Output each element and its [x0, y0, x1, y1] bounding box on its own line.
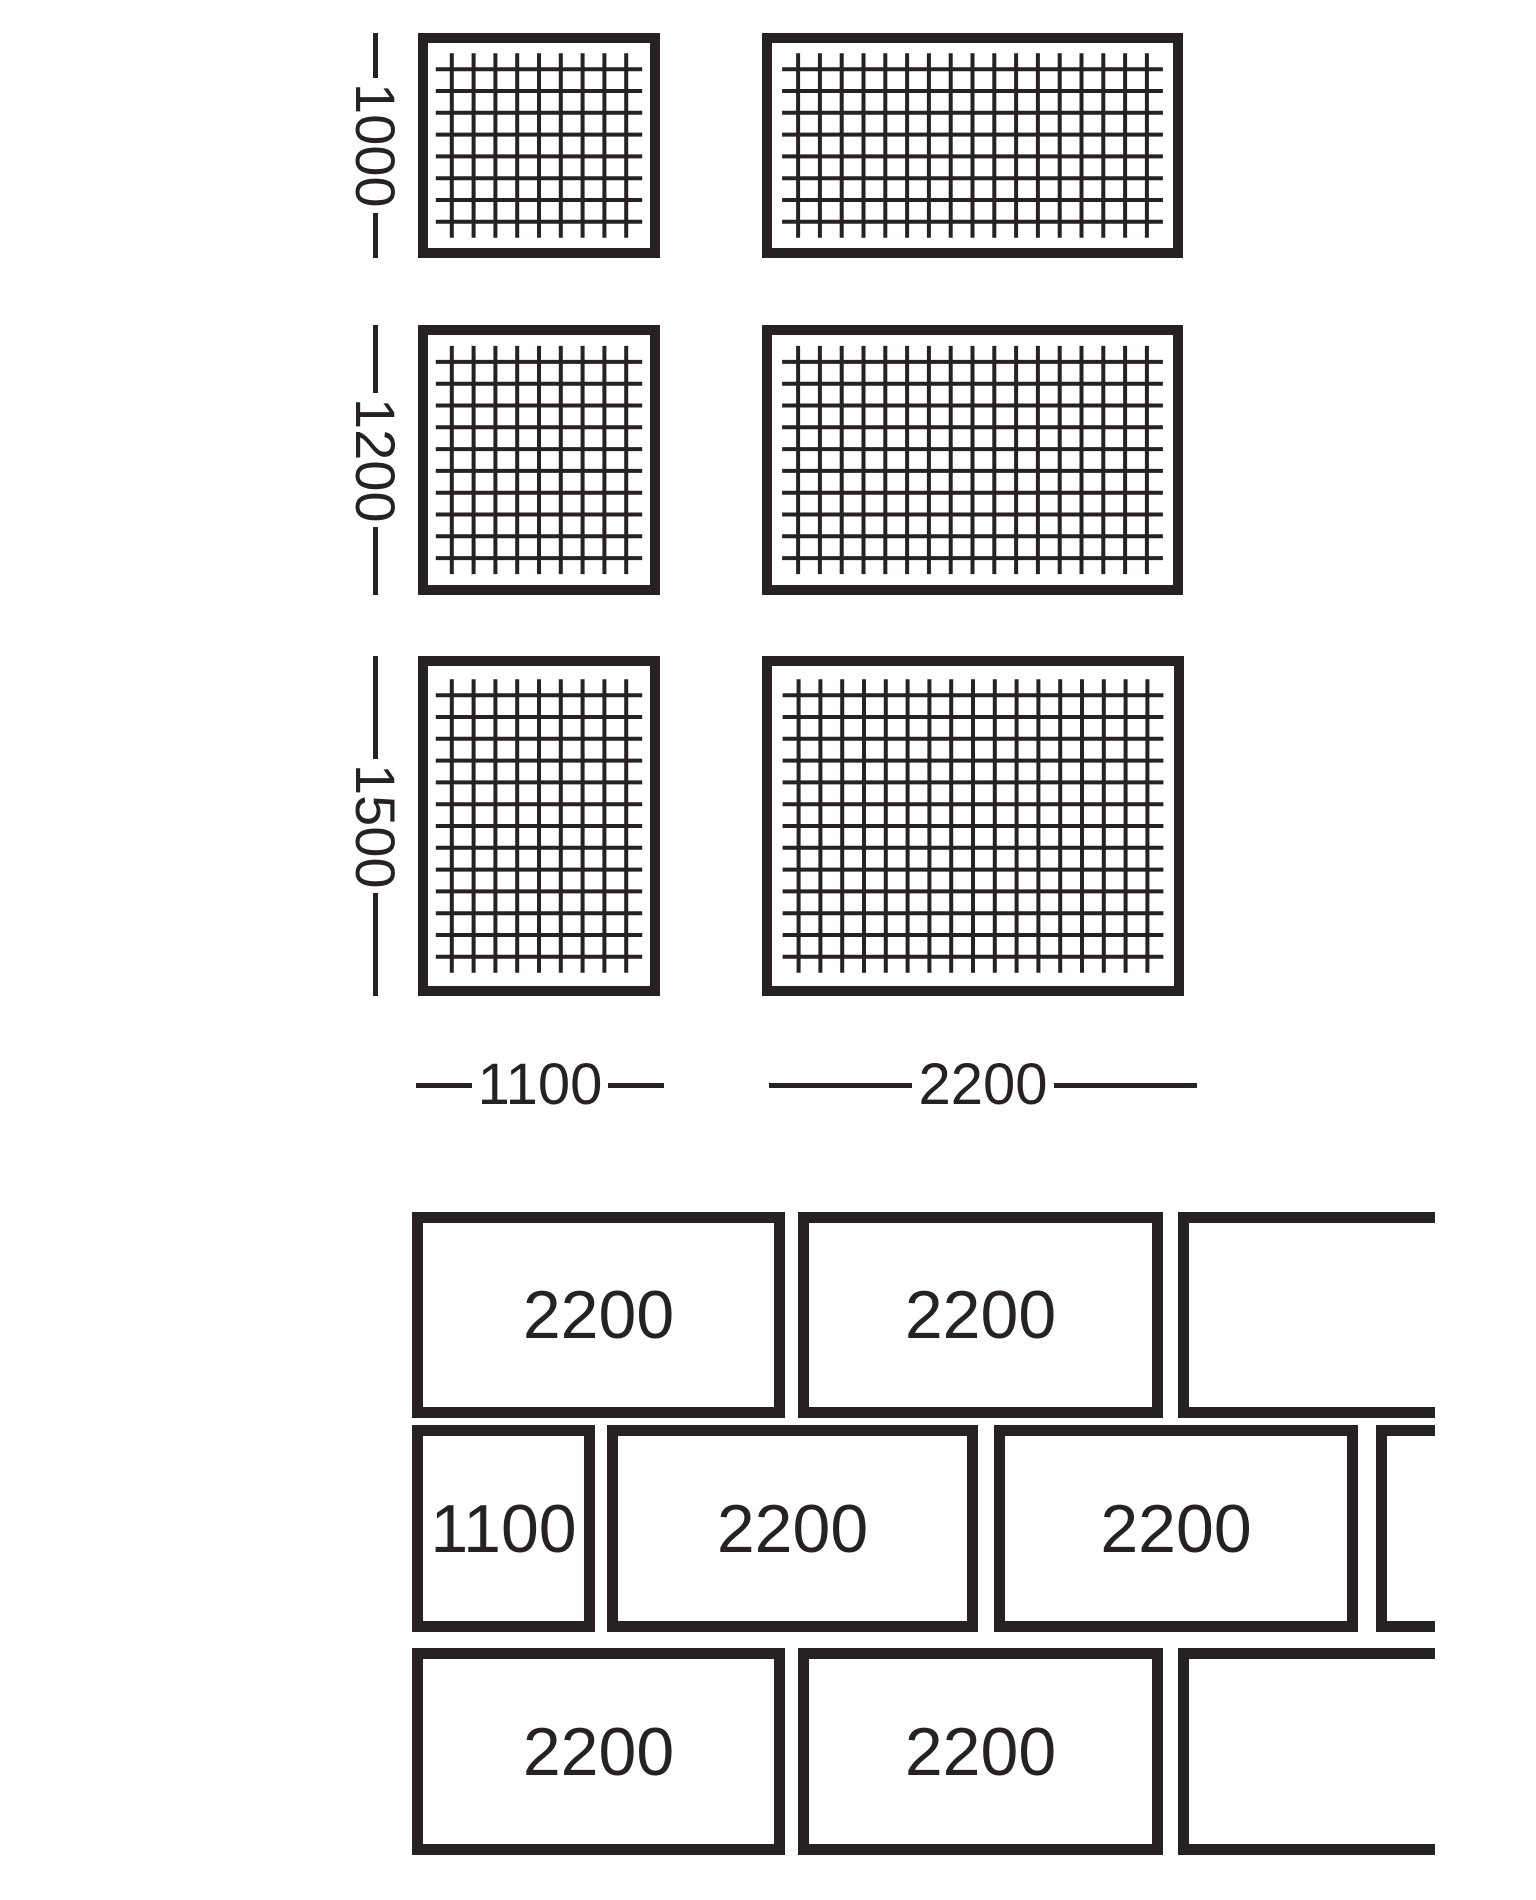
brick-cut-off: [1178, 1212, 1435, 1418]
brick-2200: 2200: [798, 1648, 1163, 1855]
brick-size-label: 2200: [905, 1281, 1056, 1349]
brick-size-label: 2200: [523, 1281, 674, 1349]
brick-size-label: 1100: [430, 1495, 576, 1563]
mesh-panel-technical-drawing: 10001200150011002200 2200220011002200220…: [0, 0, 1536, 1900]
brick-size-label: 2200: [717, 1495, 868, 1563]
brick-2200: 2200: [412, 1648, 785, 1855]
brick-2200: 2200: [994, 1425, 1358, 1632]
brick-size-label: 2200: [905, 1718, 1056, 1786]
brick-2200: 2200: [798, 1212, 1163, 1418]
brick-cut-off: [1376, 1425, 1435, 1632]
brick-2200: 2200: [607, 1425, 978, 1632]
brick-size-label: 2200: [1100, 1495, 1251, 1563]
brick-size-label: 2200: [523, 1718, 674, 1786]
brick-laying-pattern: 2200220011002200220022002200: [0, 0, 1536, 1900]
brick-1100: 1100: [412, 1425, 595, 1632]
brick-2200: 2200: [412, 1212, 785, 1418]
brick-cut-off: [1178, 1648, 1435, 1855]
